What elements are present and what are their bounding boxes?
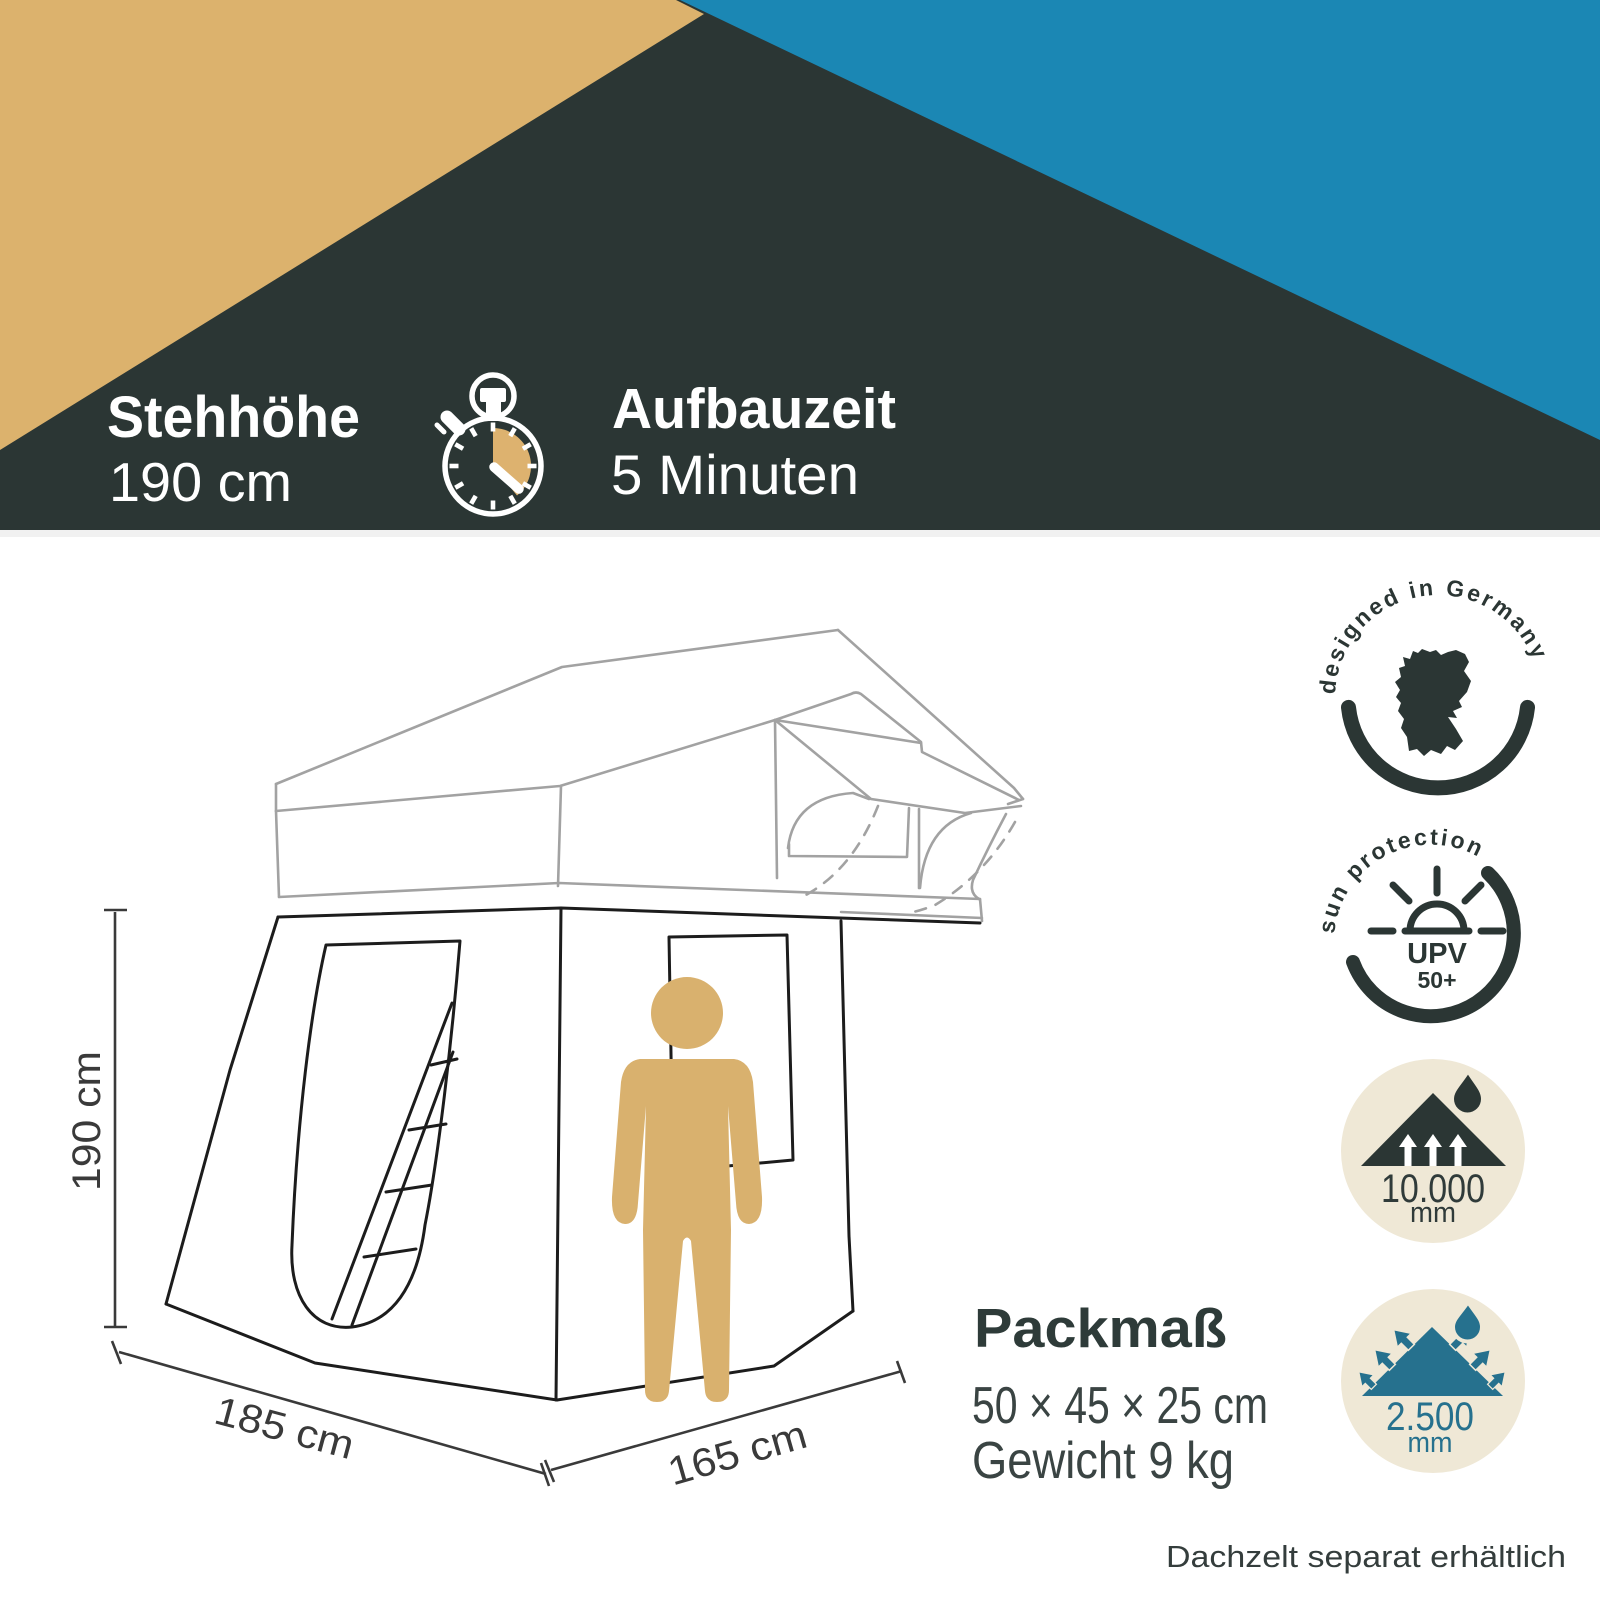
svg-text:50 × 45 × 25 cm: 50 × 45 × 25 cm [972,1377,1268,1435]
svg-text:190 cm: 190 cm [109,451,292,513]
svg-text:5 Minuten: 5 Minuten [611,443,859,506]
svg-text:Packmaß: Packmaß [974,1297,1227,1359]
svg-text:mm: mm [1410,1197,1456,1229]
svg-text:mm: mm [1408,1427,1453,1459]
svg-text:UPV: UPV [1407,938,1467,970]
svg-text:Gewicht 9 kg: Gewicht 9 kg [972,1432,1234,1490]
svg-text:Dachzelt separat erhältlich: Dachzelt separat erhältlich [1166,1539,1566,1574]
svg-text:50+: 50+ [1417,967,1456,993]
svg-text:Aufbauzeit: Aufbauzeit [612,377,896,441]
svg-text:190 cm: 190 cm [65,1051,109,1191]
svg-text:Stehhöhe: Stehhöhe [107,385,360,450]
